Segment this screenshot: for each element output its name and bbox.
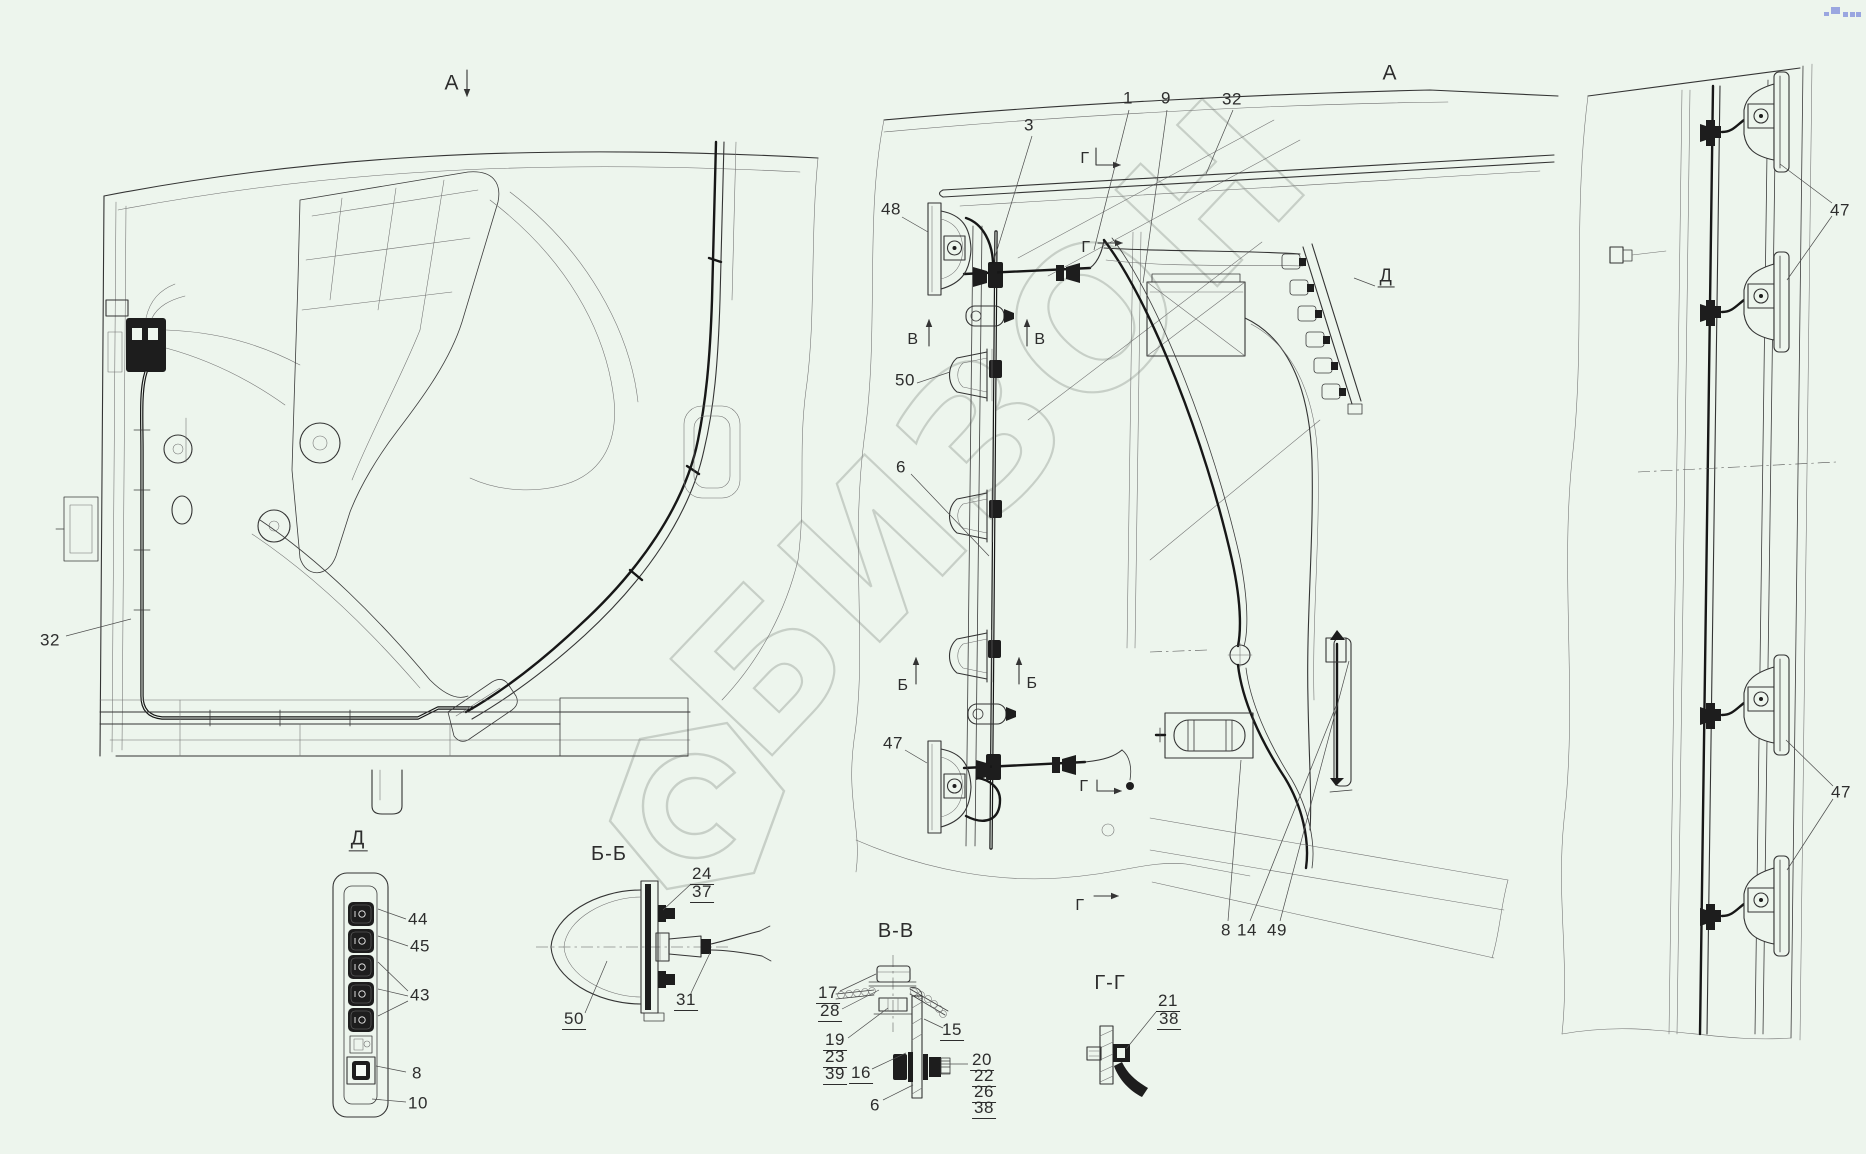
section-gg-drawing — [1087, 1026, 1148, 1097]
section-vv-drawing — [836, 955, 950, 1098]
rocker-switches — [348, 902, 374, 1032]
diagram-canvas: БИЗОН — [0, 0, 1866, 1154]
drawing-page: БИЗОН — [0, 0, 1866, 1154]
rear-view-drawing — [1561, 64, 1836, 1040]
corner-watermark — [1824, 7, 1861, 17]
spare-switch — [350, 1036, 372, 1053]
connector-strip-plugs — [1282, 254, 1362, 414]
section-bb-drawing — [536, 881, 771, 1021]
bottom-switch — [347, 1057, 375, 1084]
